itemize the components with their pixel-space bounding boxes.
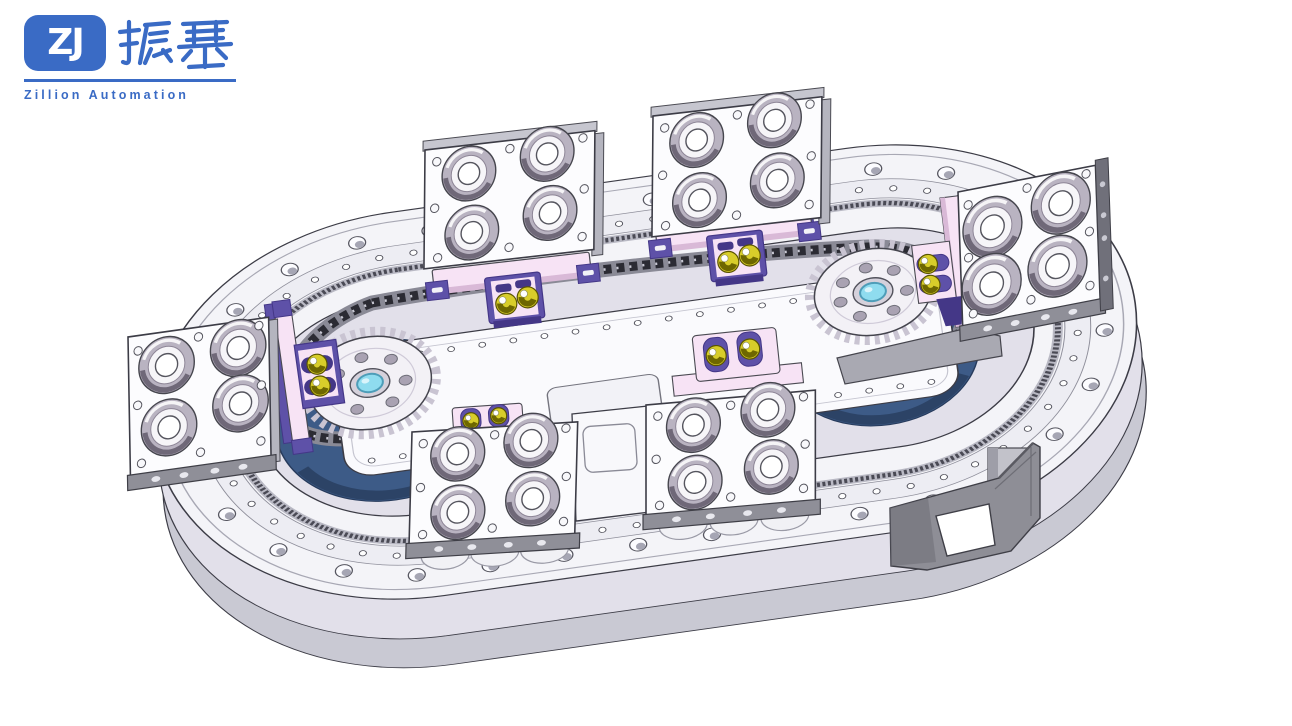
logo: ZJ 振基 Zillion Automation (24, 14, 242, 102)
logo-badge-text: ZJ (47, 25, 83, 61)
logo-divider (24, 79, 236, 82)
machine-render (0, 0, 1292, 726)
logo-subtitle: Zillion Automation (24, 88, 242, 102)
bearing-plate (405, 405, 583, 572)
logo-badge: ZJ (24, 15, 106, 71)
bearing-plate (650, 82, 831, 244)
bearing-plate (125, 309, 280, 491)
page: ZJ 振基 Zillion Automation (0, 0, 1292, 726)
bearing-plate (422, 115, 604, 275)
logo-row: ZJ 振基 (24, 14, 242, 72)
spacer-plate (572, 406, 650, 521)
logo-cn-glyphs (116, 15, 234, 71)
